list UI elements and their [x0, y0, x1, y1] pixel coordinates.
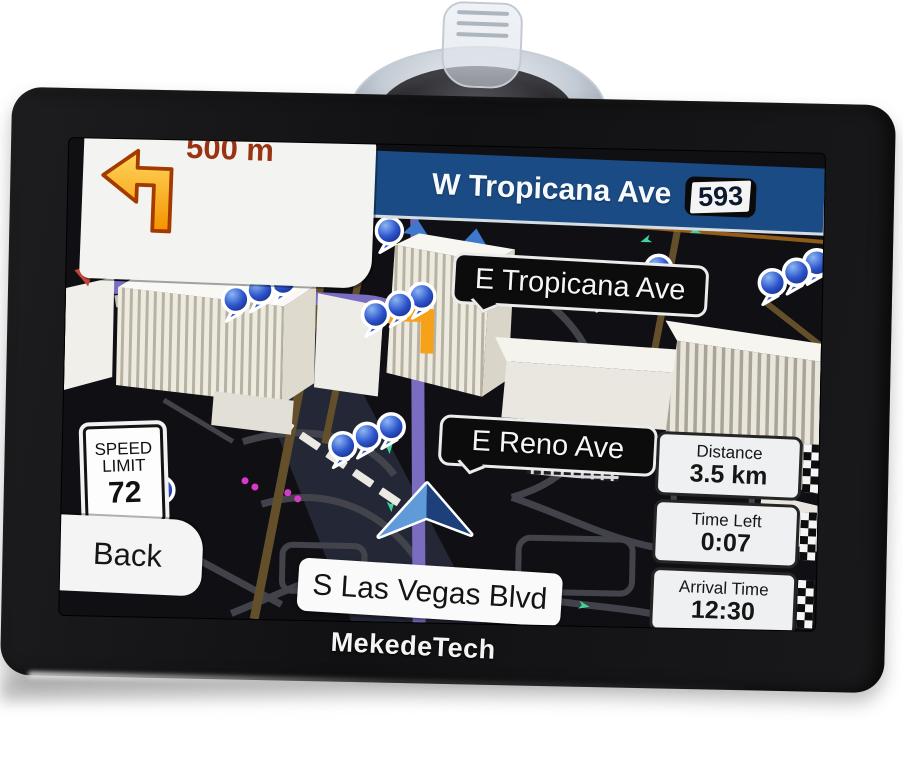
- speed-limit-sign: SPEED LIMIT 72: [83, 424, 166, 524]
- tab-ridge: [457, 10, 509, 16]
- maneuver-panel: 500 m: [79, 138, 376, 289]
- suction-cup-tab: [441, 1, 524, 90]
- turn-left-arrow-icon: [81, 138, 205, 238]
- navigation-screen[interactable]: W Tropicana Ave 593 500 m E Tropicana Av…: [59, 138, 825, 631]
- trip-info-time-left: Time Left 0:07: [652, 499, 801, 569]
- back-button[interactable]: Back: [59, 514, 204, 597]
- trip-info-value: 3.5 km: [689, 460, 768, 489]
- trip-info-value: 0:07: [700, 529, 751, 557]
- trip-info-value: 12:30: [690, 596, 755, 625]
- road-number-badge: 593: [685, 176, 758, 218]
- checkered-flag-pattern: [799, 512, 817, 561]
- brand-logo: MekedeTech: [330, 627, 531, 668]
- product-photo-stage: { "brand": { "logo_text": "MekedeTech" }…: [0, 0, 903, 768]
- trip-info-distance: Distance 3.5 km: [655, 431, 804, 501]
- tab-ridge: [457, 21, 509, 27]
- street-label-e-reno: E Reno Ave: [438, 414, 659, 477]
- speed-limit-word: LIMIT: [102, 457, 146, 476]
- trip-info-panel: Distance 3.5 km Time Left 0:07 Arrival T…: [649, 431, 803, 631]
- road-number: 593: [698, 180, 744, 212]
- next-road-name: W Tropicana Ave: [431, 168, 672, 212]
- tab-ridge: [456, 32, 508, 38]
- checkered-flag-pattern: [796, 580, 814, 629]
- checkered-flag-pattern: [802, 444, 820, 493]
- gps-device-body: W Tropicana Ave 593 500 m E Tropicana Av…: [0, 87, 896, 693]
- speed-limit-value: 72: [108, 477, 142, 509]
- trip-info-arrival-time: Arrival Time 12:30: [649, 567, 798, 631]
